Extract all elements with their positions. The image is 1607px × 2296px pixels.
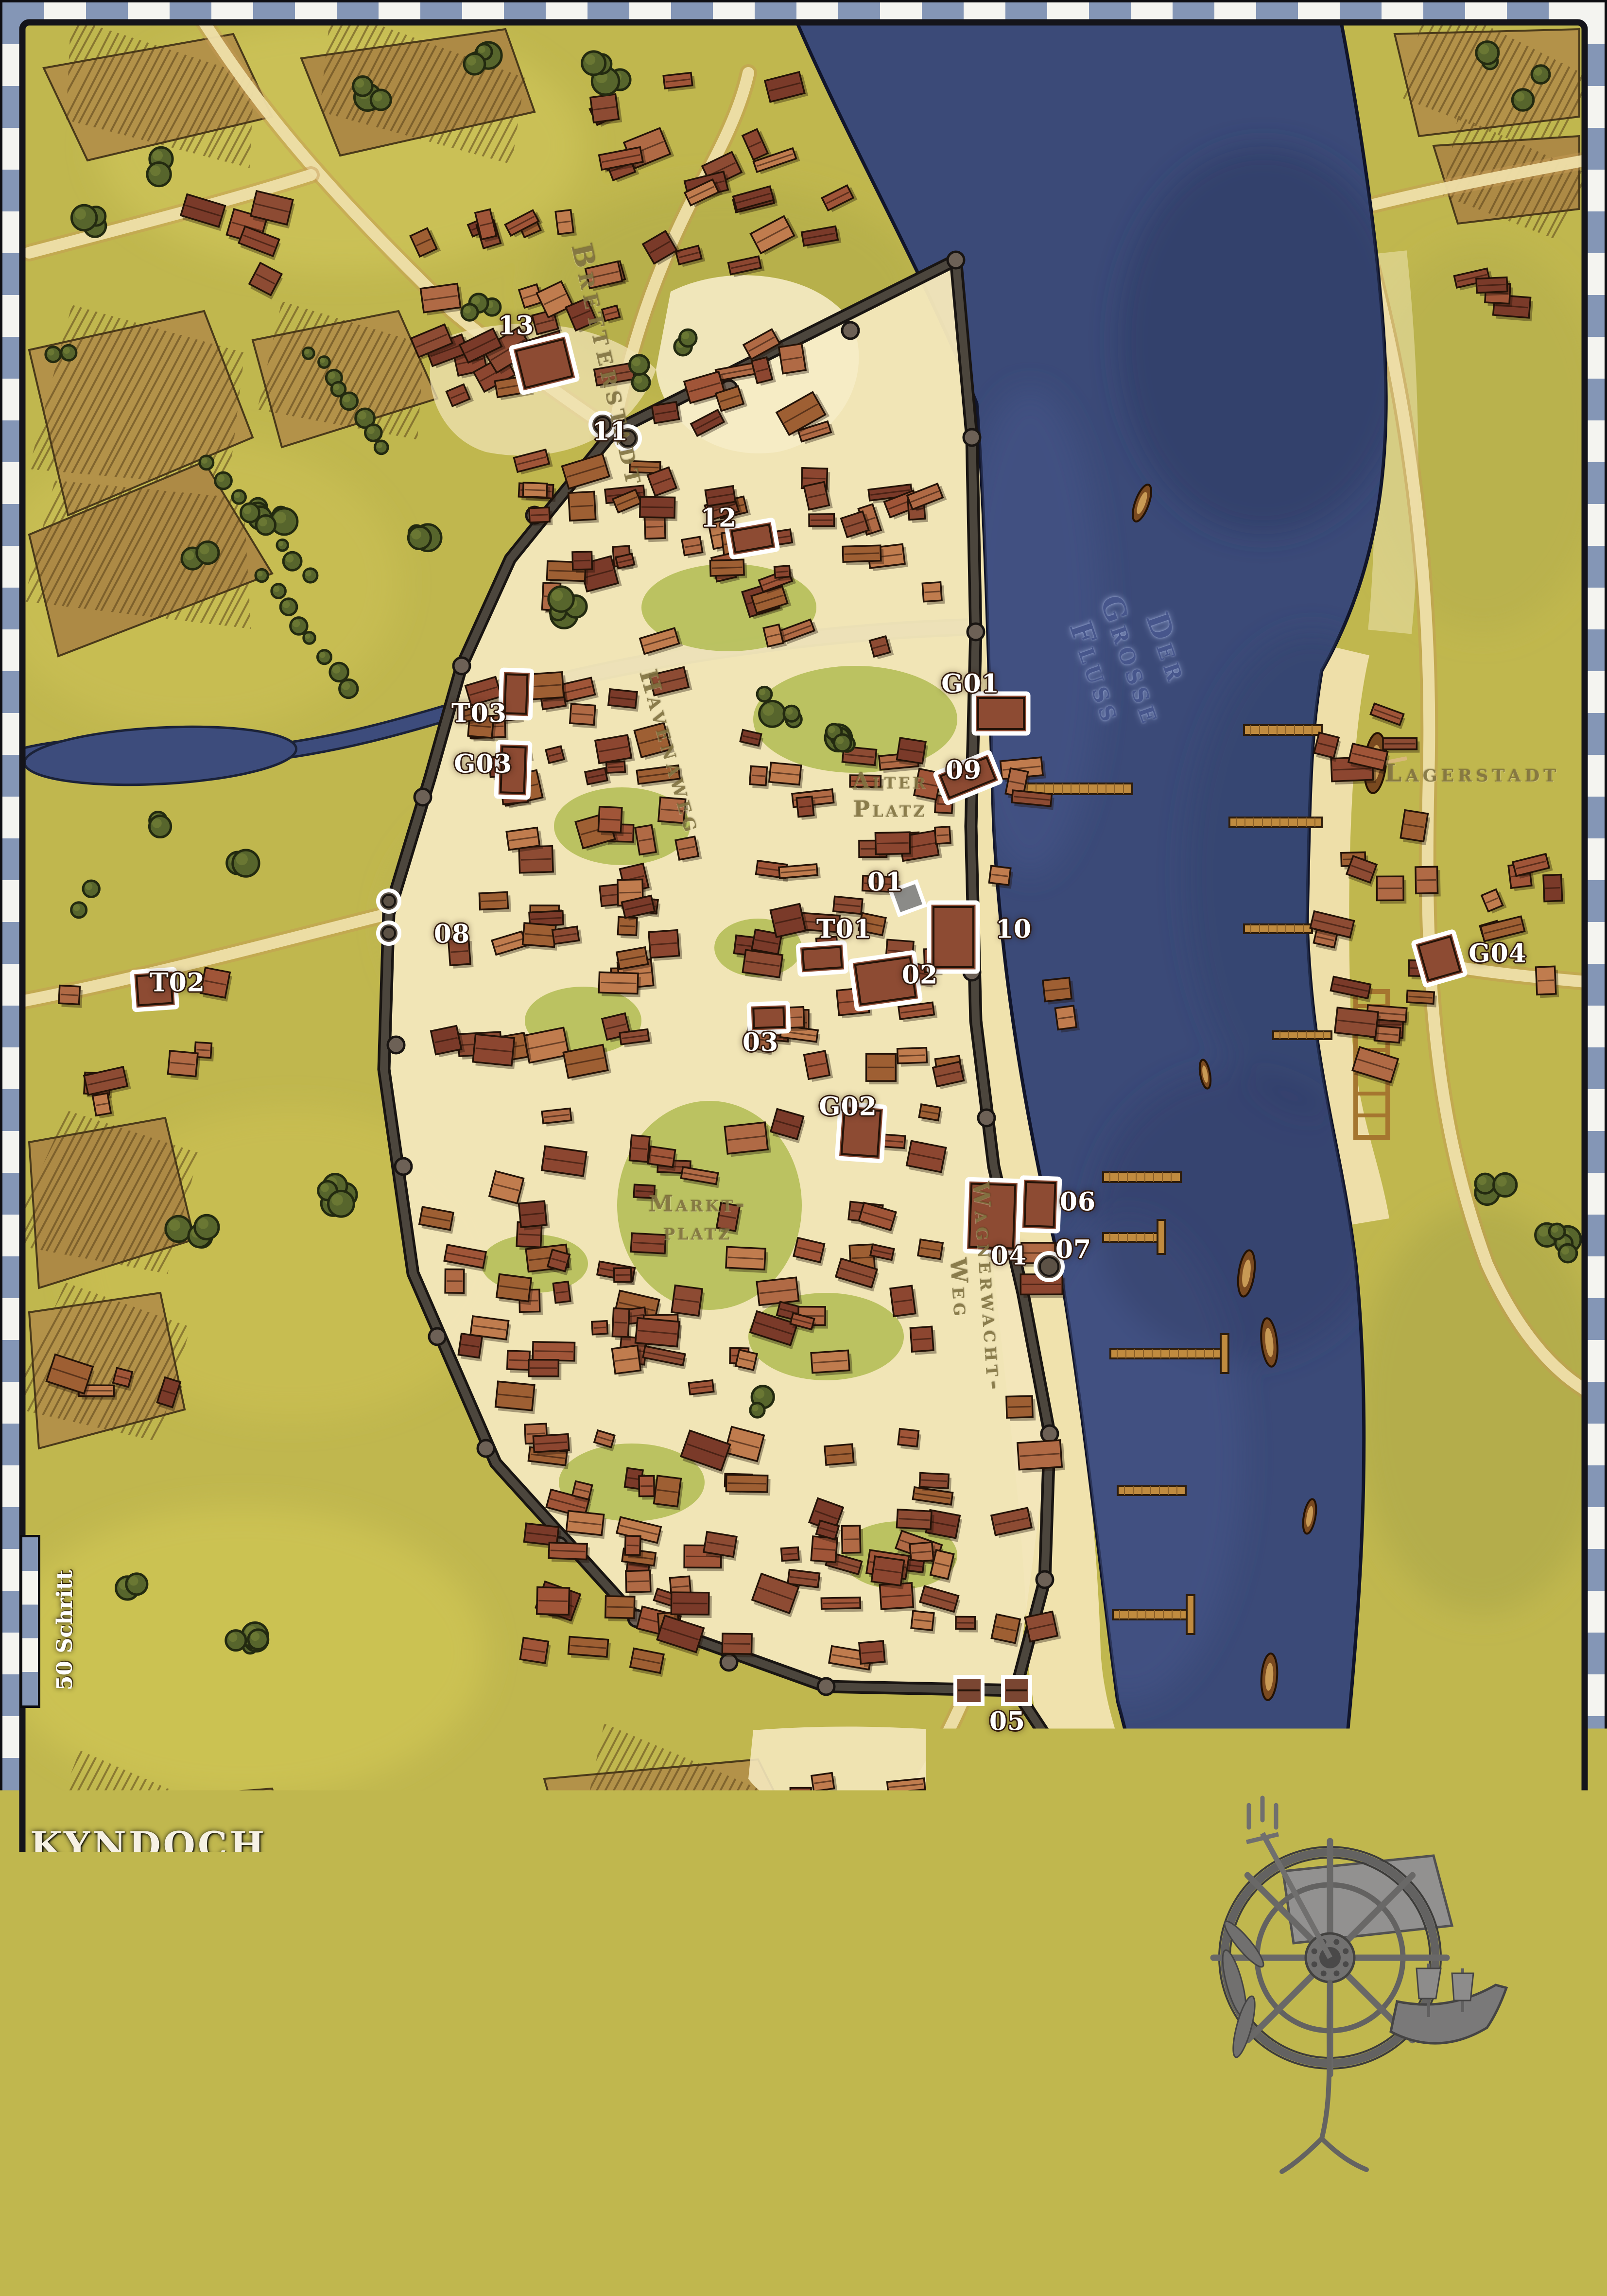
compass-letter-south: P bbox=[1315, 2033, 1347, 2082]
compass-letter-west: E bbox=[1205, 1934, 1237, 1983]
artist-signature-line1: Matthias bbox=[1367, 2113, 1477, 2140]
scale-bar bbox=[20, 1535, 40, 1708]
map-illustration bbox=[0, 0, 1607, 2296]
scale-bar-label: 50 Schritt bbox=[52, 1570, 77, 1690]
compass-letter-east: R bbox=[1421, 1933, 1455, 1983]
compass-letter-north: F bbox=[1314, 1835, 1344, 1884]
kyndoch-city-map: BretterstadtHavenawegAlter PlatzMarkt- p… bbox=[0, 0, 1607, 2296]
